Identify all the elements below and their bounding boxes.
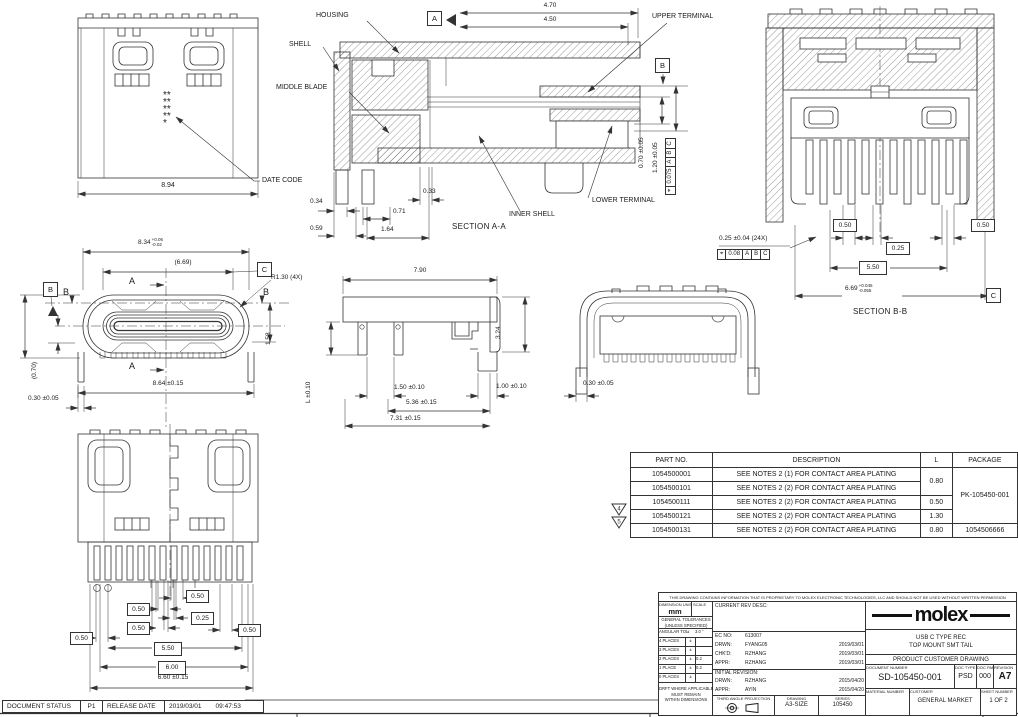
table-header-row: PART NO. DESCRIPTION L PACKAGE xyxy=(631,453,1018,468)
housing-label: HOUSING xyxy=(316,12,349,20)
revision-block: CURRENT REV DESC: EC NO: 613007 DRWN: FY… xyxy=(713,602,866,715)
customer-row: MATERIAL NUMBER CUSTOMER GENERAL MARKET … xyxy=(866,689,1016,715)
description: SEE NOTES 2 (2) FOR CONTACT AREA PLATING xyxy=(712,496,920,510)
document-number-cell: DOCUMENT NUMBER SD-105450-001 xyxy=(866,665,955,689)
dim-158-vertical: 1.58 xyxy=(265,332,273,345)
document-status-label: DOCUMENT STATUS xyxy=(3,701,81,712)
customer-value: GENERAL MARKET xyxy=(910,694,980,708)
package-merged: PK-105450-001 xyxy=(952,468,1017,524)
part-no: 1054500101 xyxy=(631,482,713,496)
sheet-number-value: 1 OF 2 xyxy=(981,694,1016,708)
molex-logo: molex xyxy=(866,602,1016,629)
datum-b-box-face: B xyxy=(43,282,58,297)
doc-kind: PRODUCT CUSTOMER DRAWING xyxy=(866,654,1016,665)
feature-control-frame-bb: ⌖0.08ABC xyxy=(718,249,770,260)
dim-669-ref: (6.69) xyxy=(153,259,213,267)
l-value: 0.50 xyxy=(920,496,952,510)
section-aa-linework xyxy=(318,8,688,240)
revision-value: A7 xyxy=(994,670,1016,683)
l-value: 0.80 xyxy=(920,524,952,538)
part-no-header: PART NO. xyxy=(631,453,713,468)
part-no: 1054500131 xyxy=(631,524,713,538)
package-header: PACKAGE xyxy=(952,453,1017,468)
current-rev-desc: CURRENT REV DESC: xyxy=(713,602,866,632)
view-face-linework xyxy=(20,248,290,430)
dim-450: 4.50 xyxy=(510,16,590,24)
section-aa-title: SECTION A-A xyxy=(452,223,506,231)
section-letter-a-top: A xyxy=(129,277,135,285)
dim-834: 8.34 +0.06-0.02 xyxy=(138,238,163,247)
dim-033: 0.33 xyxy=(423,188,436,196)
drawing-size-cell: DRAWING A3-SIZE xyxy=(775,696,819,716)
dim-pitch-bb: 0.25 ±0.04 (24X) xyxy=(719,235,767,243)
feature-control-frame-aa: ⌖0.075ABC xyxy=(665,138,676,194)
position-symbol: ⌖ xyxy=(665,186,676,195)
units-row: DIMENSION UNITS mm SCALE xyxy=(659,602,713,617)
dim-r130: R1.30 (4X) xyxy=(271,274,302,282)
dim-034: 0.34 xyxy=(310,198,323,206)
init-row: DRWN: RZHANG 2015/04/20 xyxy=(715,678,864,685)
logo-bar xyxy=(872,614,912,617)
rev-row: CHK'D: RZHANG 2019/03/01 xyxy=(715,651,864,658)
proprietary-notice: THIS DRAWING CONTAINS INFORMATION THAT I… xyxy=(659,593,1016,602)
date-code-marks: ********* xyxy=(163,92,172,127)
tol-row: 4 PLACES ± xyxy=(659,638,713,647)
inner-shell-label: INNER SHELL xyxy=(509,211,555,219)
dim-731: 7.31 ±0.15 xyxy=(390,415,421,423)
dim-071: 0.71 xyxy=(393,208,406,216)
dim-669-bb: 6.69 +0.045-0.055 xyxy=(845,284,873,293)
parts-table: PART NO. DESCRIPTION L PACKAGE 105450000… xyxy=(630,452,1018,538)
release-date-label: RELEASE DATE xyxy=(103,701,165,712)
identification-block: molex USB C TYPE REC TOP MOUNT SMT TAIL … xyxy=(866,602,1016,715)
dim-070-vertical: 0.70 ±0.05 xyxy=(638,137,646,168)
dim-050-e: 0.50 xyxy=(70,632,93,645)
release-date-value: 2019/03/01 09:47:53 xyxy=(165,701,263,712)
dim-164: 1.64 xyxy=(381,226,394,234)
dim-030-back: 0.30 ±0.05 xyxy=(583,380,614,388)
datum-c-box-face: C xyxy=(257,262,272,277)
part-no: 1054500001 xyxy=(631,468,713,482)
units-value: mm xyxy=(659,607,691,616)
part-no: 1054500121 xyxy=(631,510,713,524)
sheet-number-cell: SHEET NUMBER 1 OF 2 xyxy=(981,689,1016,715)
datum-a-box: A xyxy=(427,11,442,26)
dim-050-b: 0.50 xyxy=(127,603,150,616)
brand-row: molex xyxy=(866,602,1016,630)
table-row: 1054500131 SEE NOTES 2 (2) FOR CONTACT A… xyxy=(631,524,1018,538)
material-number-cell: MATERIAL NUMBER xyxy=(866,689,910,715)
rev-row: DRWN: FYANG05 2019/03/01 xyxy=(715,642,864,649)
dim-overall-width: 8.94 xyxy=(148,182,188,190)
dim-050-d: 0.50 xyxy=(238,624,261,637)
description: SEE NOTES 2 (2) FOR CONTACT AREA PLATING xyxy=(712,510,920,524)
doc-type: PSD xyxy=(955,670,976,683)
dim-030-face: 0.30 ±0.05 xyxy=(28,395,59,403)
dim-150: 1.50 ±0.10 xyxy=(394,384,425,392)
section-letter-b-left: B xyxy=(63,288,69,296)
third-angle-projection-icon xyxy=(724,702,764,714)
series-number: 105450 xyxy=(819,701,866,709)
l-value: 1.30 xyxy=(920,510,952,524)
document-status-bar: DOCUMENT STATUS P1 RELEASE DATE 2019/03/… xyxy=(2,700,264,713)
dim-864: 8.64 ±0.15 xyxy=(143,380,193,388)
dim-536: 5.36 ±0.15 xyxy=(406,399,437,407)
dim-790: 7.90 xyxy=(398,267,442,275)
brand-wordmark: molex xyxy=(915,604,968,627)
date-code-label: DATE CODE xyxy=(262,177,302,185)
dim-l-vertical: L ±0.10 xyxy=(305,382,313,403)
dim-100: 1.00 ±0.10 xyxy=(496,383,527,391)
product-title: USB C TYPE REC TOP MOUNT SMT TAIL xyxy=(866,630,1016,654)
dim-050-right-bb: 0.50 xyxy=(971,219,995,232)
dim-050-left-bb: 0.50 xyxy=(833,219,857,232)
description-header: DESCRIPTION xyxy=(712,453,920,468)
doc-number-row: DOCUMENT NUMBER SD-105450-001 DOC TYPE P… xyxy=(866,665,1016,689)
tol-row: 3 PLACES ± xyxy=(659,647,713,656)
initial-revision-label: INITIAL REVISION: xyxy=(713,669,866,678)
init-row: APPR: AYIN 2015/04/20 xyxy=(715,687,864,694)
part-no: 1054500111 xyxy=(631,496,713,510)
description: SEE NOTES 2 (2) FOR CONTACT AREA PLATING xyxy=(712,482,920,496)
dim-059: 0.59 xyxy=(310,225,323,233)
dim-256-vertical: 2.56 ±0.04 xyxy=(0,245,1,276)
package-value: 1054506666 xyxy=(952,524,1017,538)
dim-600-bottom: 6.00 xyxy=(158,661,186,675)
revision-cell: REVISION A7 xyxy=(994,665,1016,689)
drft-note: DRFT WHERE APPLICABLE MUST REMAIN WITHIN… xyxy=(659,683,713,715)
dim-550-bb: 5.50 xyxy=(859,261,887,275)
description: SEE NOTES 2 (2) FOR CONTACT AREA PLATING xyxy=(712,524,920,538)
datum-c-box-bb: C xyxy=(986,288,1001,303)
projection-row: THIRD ANGLE PROJECTION DRAWING A3-SIZE S… xyxy=(713,695,866,715)
shell-label: SHELL xyxy=(289,41,311,49)
description: SEE NOTES 2 (1) FOR CONTACT AREA PLATING xyxy=(712,468,920,482)
dim-025-bottom: 0.25 xyxy=(191,612,214,625)
material-number-label: MATERIAL NUMBER xyxy=(866,689,909,694)
dim-550-bottom: 5.50 xyxy=(154,642,182,656)
dim-050-a: 0.50 xyxy=(186,590,209,603)
l-value-merged: 0.80 xyxy=(920,468,952,496)
rev-row: APPR: RZHANG 2019/03/01 xyxy=(715,660,864,667)
ec-row: EC NO: 613007 xyxy=(715,633,864,640)
dim-070-ref-vertical: (0.70) xyxy=(31,362,39,379)
drawing-sheet: 8.94 ********* DATE CODE HOUSING SHELL M… xyxy=(0,0,1018,717)
dim-120-vertical: 1.20 ±0.05 xyxy=(652,142,660,173)
upper-terminal-label: UPPER TERMINAL xyxy=(652,13,713,21)
third-angle-cell: THIRD ANGLE PROJECTION xyxy=(713,696,775,716)
tolerance-block: DIMENSION UNITS mm SCALE GENERAL TOLERAN… xyxy=(659,602,713,715)
third-angle-label: THIRD ANGLE PROJECTION xyxy=(713,696,774,701)
l-header: L xyxy=(920,453,952,468)
units-cell: DIMENSION UNITS mm xyxy=(659,602,692,617)
series-cell: SERIES 105450 xyxy=(819,696,866,716)
section-letter-a-bottom: A xyxy=(129,362,135,370)
table-row: 1054500001 SEE NOTES 2 (1) FOR CONTACT A… xyxy=(631,468,1018,482)
dim-324-vertical: 3.24 xyxy=(495,326,503,339)
lower-terminal-label: LOWER TERMINAL xyxy=(592,197,655,205)
datum-b-box-aa: B xyxy=(655,58,670,73)
tol-row: 1 PLACE ± 0.2 xyxy=(659,665,713,674)
doc-part-cell: DOC PART 000 xyxy=(977,665,994,689)
document-status-value: P1 xyxy=(81,701,103,712)
section-bb-title: SECTION B-B xyxy=(853,308,907,316)
middle-blade-label: MIDDLE BLADE xyxy=(276,84,327,92)
logo-bar xyxy=(970,614,1010,617)
dim-025-bb: 0.25 xyxy=(886,242,910,255)
revision-flag-icon: 4 xyxy=(611,503,627,516)
doc-part: 000 xyxy=(977,670,993,683)
dim-470: 4.70 xyxy=(510,2,590,10)
tol-row: 2 PLACES ± 0.2 xyxy=(659,656,713,665)
section-letter-b-right: B xyxy=(263,288,269,296)
scale-label: SCALE xyxy=(693,602,713,617)
doc-type-cell: DOC TYPE PSD xyxy=(955,665,977,689)
dim-050-c: 0.50 xyxy=(127,622,150,635)
tol-row: 0 PLACES ± xyxy=(659,674,713,683)
document-number: SD-105450-001 xyxy=(866,670,954,684)
drawing-size: A3-SIZE xyxy=(775,701,818,709)
general-tolerances: GENERAL TOLERANCES (UNLESS SPECIFIED) xyxy=(659,617,713,629)
dim-660: 6.60 ±0.15 xyxy=(143,674,203,682)
title-block: THIS DRAWING CONTAINS INFORMATION THAT I… xyxy=(658,592,1017,716)
customer-cell: CUSTOMER GENERAL MARKET xyxy=(910,689,981,715)
angular-tol-row: ANGULAR TOL ± 3.0 ° xyxy=(659,629,713,638)
revision-flag-icon: 5 xyxy=(611,516,627,529)
